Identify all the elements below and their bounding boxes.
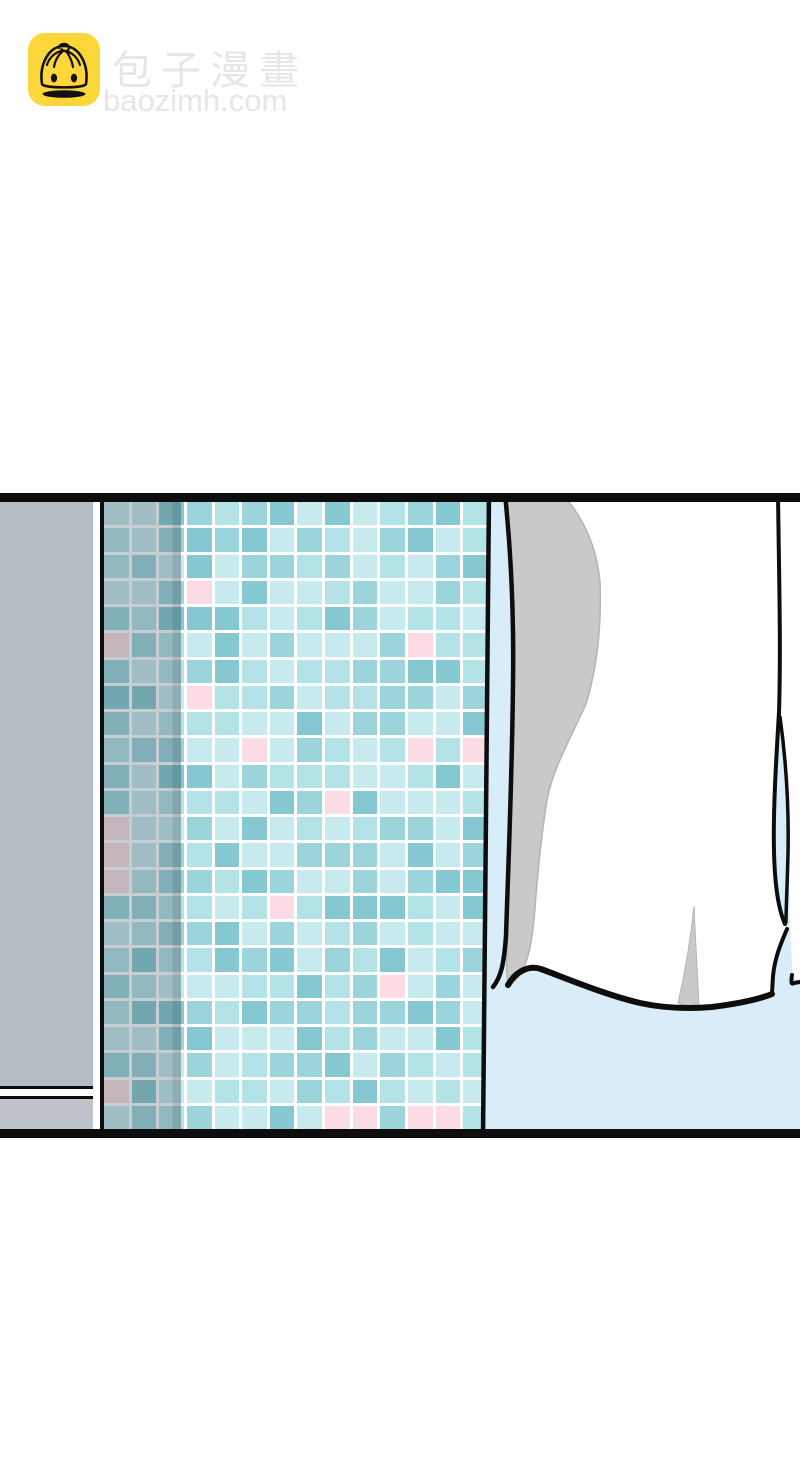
tile: [408, 555, 433, 578]
tile: [408, 765, 433, 788]
tile: [187, 555, 212, 578]
tile: [380, 817, 405, 840]
tile: [215, 1106, 240, 1129]
tile: [436, 948, 461, 971]
tile: [325, 581, 350, 604]
tile: [325, 502, 350, 525]
tile: [436, 1027, 461, 1050]
tile: [215, 922, 240, 945]
tile: [380, 1027, 405, 1050]
tile: [242, 817, 267, 840]
tile: [242, 870, 267, 893]
tile: [297, 843, 322, 866]
tile: [297, 1027, 322, 1050]
site-logo[interactable]: 包子漫畫 baozimh.com: [28, 33, 368, 118]
tile: [215, 633, 240, 656]
tile: [353, 922, 378, 945]
tile: [270, 975, 295, 998]
tile: [187, 922, 212, 945]
tile: [242, 1080, 267, 1103]
tile: [215, 581, 240, 604]
tile: [270, 581, 295, 604]
tile: [353, 633, 378, 656]
tile: [242, 528, 267, 551]
tile: [408, 843, 433, 866]
tile: [215, 738, 240, 761]
tile: [325, 686, 350, 709]
tile: [270, 948, 295, 971]
tile: [408, 1053, 433, 1076]
tile: [187, 581, 212, 604]
tile: [353, 555, 378, 578]
tile: [242, 791, 267, 814]
tile: [242, 975, 267, 998]
tile: [436, 607, 461, 630]
tile: [270, 607, 295, 630]
tile: [215, 502, 240, 525]
tile: [408, 870, 433, 893]
tile: [187, 528, 212, 551]
tile: [353, 1027, 378, 1050]
tile: [297, 896, 322, 919]
tile: [270, 1001, 295, 1024]
tile: [297, 791, 322, 814]
tile: [270, 1053, 295, 1076]
tile: [297, 555, 322, 578]
tile: [270, 633, 295, 656]
tile: [215, 555, 240, 578]
tile: [325, 791, 350, 814]
tile: [436, 581, 461, 604]
tile: [187, 791, 212, 814]
shower-curtain-scene: [480, 493, 800, 1138]
tile: [187, 1053, 212, 1076]
tile: [325, 765, 350, 788]
tile: [353, 607, 378, 630]
baozi-face-drawing: [28, 33, 100, 106]
tile: [408, 975, 433, 998]
tile: [353, 765, 378, 788]
tile: [380, 843, 405, 866]
tile: [380, 948, 405, 971]
tile: [408, 633, 433, 656]
tile: [215, 607, 240, 630]
tile: [436, 738, 461, 761]
tile: [215, 791, 240, 814]
tile: [380, 660, 405, 683]
tile: [380, 1001, 405, 1024]
tile: [380, 686, 405, 709]
tile: [187, 502, 212, 525]
tile: [187, 896, 212, 919]
tile: [187, 975, 212, 998]
tile: [436, 922, 461, 945]
tile: [215, 765, 240, 788]
tile: [353, 1106, 378, 1129]
tile: [297, 738, 322, 761]
tile: [380, 1080, 405, 1103]
tile: [187, 1001, 212, 1024]
tile: [380, 712, 405, 735]
tile: [242, 843, 267, 866]
tile: [325, 870, 350, 893]
tile: [325, 1053, 350, 1076]
tile: [242, 1027, 267, 1050]
tile: [297, 633, 322, 656]
tile: [325, 1001, 350, 1024]
tile: [242, 948, 267, 971]
tile: [408, 922, 433, 945]
tile: [436, 528, 461, 551]
tile: [380, 738, 405, 761]
tile: [353, 502, 378, 525]
tile: [353, 1080, 378, 1103]
tile: [270, 686, 295, 709]
tile: [436, 896, 461, 919]
tile: [380, 633, 405, 656]
tile: [353, 738, 378, 761]
tile: [353, 896, 378, 919]
tile: [297, 765, 322, 788]
tile: [187, 607, 212, 630]
tile: [187, 738, 212, 761]
tile: [270, 791, 295, 814]
tile: [270, 765, 295, 788]
tile: [215, 975, 240, 998]
tile: [436, 870, 461, 893]
tile: [270, 817, 295, 840]
tile: [270, 1106, 295, 1129]
tile: [408, 896, 433, 919]
tile: [380, 922, 405, 945]
tile: [187, 765, 212, 788]
tile: [215, 896, 240, 919]
tile: [187, 870, 212, 893]
tile: [297, 686, 322, 709]
tile: [325, 1027, 350, 1050]
tile: [297, 975, 322, 998]
tile: [380, 502, 405, 525]
tile: [215, 528, 240, 551]
tile: [270, 896, 295, 919]
tile: [325, 1106, 350, 1129]
tile: [242, 686, 267, 709]
tile: [408, 686, 433, 709]
tile: [242, 607, 267, 630]
tile: [187, 948, 212, 971]
tile: [380, 528, 405, 551]
tile: [215, 1027, 240, 1050]
tile: [242, 896, 267, 919]
panel-border-top: [0, 493, 800, 502]
tile: [242, 660, 267, 683]
tile: [436, 633, 461, 656]
tile: [325, 660, 350, 683]
tile: [380, 581, 405, 604]
tile: [270, 712, 295, 735]
tile: [325, 843, 350, 866]
tile: [297, 1053, 322, 1076]
tile: [325, 712, 350, 735]
tile: [353, 660, 378, 683]
tile: [325, 922, 350, 945]
tile: [270, 922, 295, 945]
tile: [408, 817, 433, 840]
tile: [325, 738, 350, 761]
tile: [436, 660, 461, 683]
tile: [270, 1080, 295, 1103]
tile: [215, 817, 240, 840]
page-background: 包子漫畫 baozimh.com: [0, 0, 800, 1472]
tile: [187, 633, 212, 656]
tile: [353, 686, 378, 709]
tile: [325, 607, 350, 630]
tile: [215, 686, 240, 709]
tile: [436, 686, 461, 709]
tile: [270, 738, 295, 761]
tile: [297, 581, 322, 604]
tile: [353, 975, 378, 998]
tile: [353, 870, 378, 893]
tile: [408, 581, 433, 604]
left-wall-lower: [0, 1099, 93, 1129]
tile: [353, 1053, 378, 1076]
tile: [353, 817, 378, 840]
tile: [408, 1080, 433, 1103]
tile: [325, 896, 350, 919]
tile: [270, 1027, 295, 1050]
tile: [436, 1053, 461, 1076]
tile: [270, 870, 295, 893]
tile: [297, 1106, 322, 1129]
tile: [215, 1001, 240, 1024]
tile: [187, 660, 212, 683]
tile: [436, 817, 461, 840]
tile: [436, 765, 461, 788]
tile: [187, 712, 212, 735]
tile: [380, 555, 405, 578]
tile: [242, 712, 267, 735]
left-wall-groove: [0, 1086, 100, 1099]
tile: [215, 870, 240, 893]
tile: [242, 581, 267, 604]
tile: [325, 1080, 350, 1103]
tile: [408, 791, 433, 814]
tile: [408, 607, 433, 630]
tile: [270, 660, 295, 683]
tile: [297, 660, 322, 683]
site-domain: baozimh.com: [103, 83, 287, 119]
tile: [408, 1027, 433, 1050]
tile: [325, 555, 350, 578]
tile: [297, 607, 322, 630]
tile: [297, 1080, 322, 1103]
tile: [408, 948, 433, 971]
tile: [187, 817, 212, 840]
tile: [436, 1080, 461, 1103]
tile: [380, 1106, 405, 1129]
tile: [353, 1001, 378, 1024]
tile: [297, 817, 322, 840]
tile: [215, 1080, 240, 1103]
tile: [353, 581, 378, 604]
tile: [325, 817, 350, 840]
tile: [242, 633, 267, 656]
tile: [436, 555, 461, 578]
tile: [242, 555, 267, 578]
tile: [242, 765, 267, 788]
tile: [297, 922, 322, 945]
tile: [380, 975, 405, 998]
tile: [380, 607, 405, 630]
tile: [215, 660, 240, 683]
tile: [187, 1080, 212, 1103]
tile: [325, 528, 350, 551]
tile: [270, 555, 295, 578]
tile: [353, 528, 378, 551]
tile: [353, 791, 378, 814]
tile: [408, 660, 433, 683]
tile: [270, 843, 295, 866]
tile: [297, 870, 322, 893]
tile: [270, 502, 295, 525]
tile: [353, 948, 378, 971]
tile: [408, 738, 433, 761]
tile: [380, 870, 405, 893]
tile: [242, 502, 267, 525]
tile-shadow-overlay: [104, 502, 181, 1129]
tile: [297, 1001, 322, 1024]
tile: [242, 1001, 267, 1024]
wall-corner-highlight: [93, 502, 100, 1129]
tile: [436, 502, 461, 525]
tile: [353, 712, 378, 735]
tile: [242, 922, 267, 945]
tile: [380, 765, 405, 788]
tile: [242, 1106, 267, 1129]
baozi-logo-icon: [28, 33, 100, 106]
tile: [380, 791, 405, 814]
tile: [436, 712, 461, 735]
tile: [297, 502, 322, 525]
tile: [187, 1106, 212, 1129]
tile: [270, 528, 295, 551]
tile: [325, 975, 350, 998]
tile: [242, 1053, 267, 1076]
tile: [408, 502, 433, 525]
tile: [353, 843, 378, 866]
tile: [408, 528, 433, 551]
tile: [408, 712, 433, 735]
tile: [297, 528, 322, 551]
tile: [215, 948, 240, 971]
tile: [380, 1053, 405, 1076]
tile: [408, 1001, 433, 1024]
tile: [297, 948, 322, 971]
tile: [436, 843, 461, 866]
tile: [187, 843, 212, 866]
tile: [215, 843, 240, 866]
tile: [325, 948, 350, 971]
tile: [436, 1106, 461, 1129]
tile: [325, 633, 350, 656]
tile: [436, 1001, 461, 1024]
tile: [187, 1027, 212, 1050]
tile: [242, 738, 267, 761]
tile: [408, 1106, 433, 1129]
tile: [436, 791, 461, 814]
tile: [215, 1053, 240, 1076]
panel-border-bottom: [0, 1129, 800, 1138]
left-wall-upper: [0, 502, 93, 1086]
tile: [436, 975, 461, 998]
tile: [297, 712, 322, 735]
tile: [215, 712, 240, 735]
tile: [187, 686, 212, 709]
tile: [380, 896, 405, 919]
